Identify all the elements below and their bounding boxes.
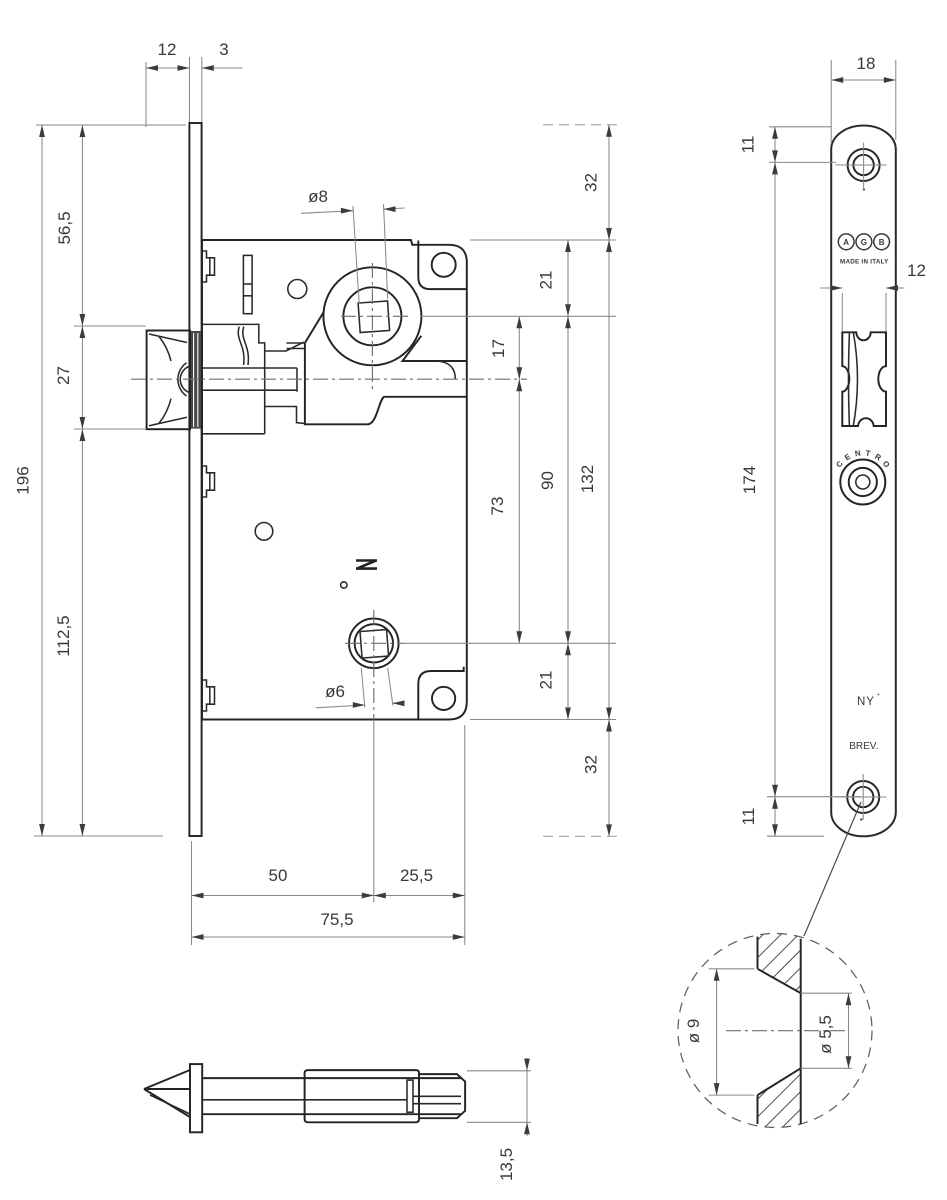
svg-text:112,5: 112,5 — [54, 615, 73, 656]
svg-text:E: E — [843, 452, 852, 462]
svg-text:B: B — [879, 238, 885, 247]
svg-text:17: 17 — [489, 339, 508, 358]
svg-text:ø6: ø6 — [325, 682, 345, 701]
svg-text:R: R — [873, 452, 883, 463]
svg-text:T: T — [865, 448, 871, 458]
svg-text:18: 18 — [857, 54, 876, 73]
svg-text:NY: NY — [857, 696, 875, 708]
svg-text:O: O — [881, 459, 892, 469]
svg-text:A: A — [843, 238, 849, 247]
svg-text:73: 73 — [488, 497, 507, 516]
svg-text:3: 3 — [219, 40, 228, 59]
svg-text:ø 5,5: ø 5,5 — [816, 1015, 835, 1054]
svg-text:12: 12 — [907, 261, 926, 280]
svg-text:ø8: ø8 — [308, 187, 328, 206]
svg-text:174: 174 — [740, 466, 759, 494]
svg-text:90: 90 — [538, 471, 557, 490]
svg-text:75,5: 75,5 — [320, 910, 353, 929]
svg-text:13,5: 13,5 — [497, 1148, 516, 1181]
svg-text:21: 21 — [537, 271, 556, 290]
svg-text:25,5: 25,5 — [400, 866, 433, 885]
svg-text:56,5: 56,5 — [55, 211, 74, 244]
svg-text:C: C — [834, 459, 845, 469]
svg-text:MADE IN ITALY: MADE IN ITALY — [840, 259, 889, 266]
svg-text:11: 11 — [739, 136, 758, 154]
svg-text:50: 50 — [269, 866, 288, 885]
svg-text:132: 132 — [578, 465, 597, 493]
svg-text:11: 11 — [739, 808, 758, 826]
svg-text:196: 196 — [14, 466, 33, 494]
svg-text:32: 32 — [582, 755, 601, 774]
svg-text:21: 21 — [537, 671, 556, 690]
svg-text:G: G — [861, 238, 867, 247]
svg-text:12: 12 — [158, 40, 177, 59]
svg-text:ø 9: ø 9 — [684, 1019, 703, 1044]
svg-text:27: 27 — [54, 366, 73, 385]
svg-text:BREV.: BREV. — [849, 741, 878, 752]
svg-text:32: 32 — [582, 173, 601, 192]
svg-text:N: N — [854, 448, 861, 458]
